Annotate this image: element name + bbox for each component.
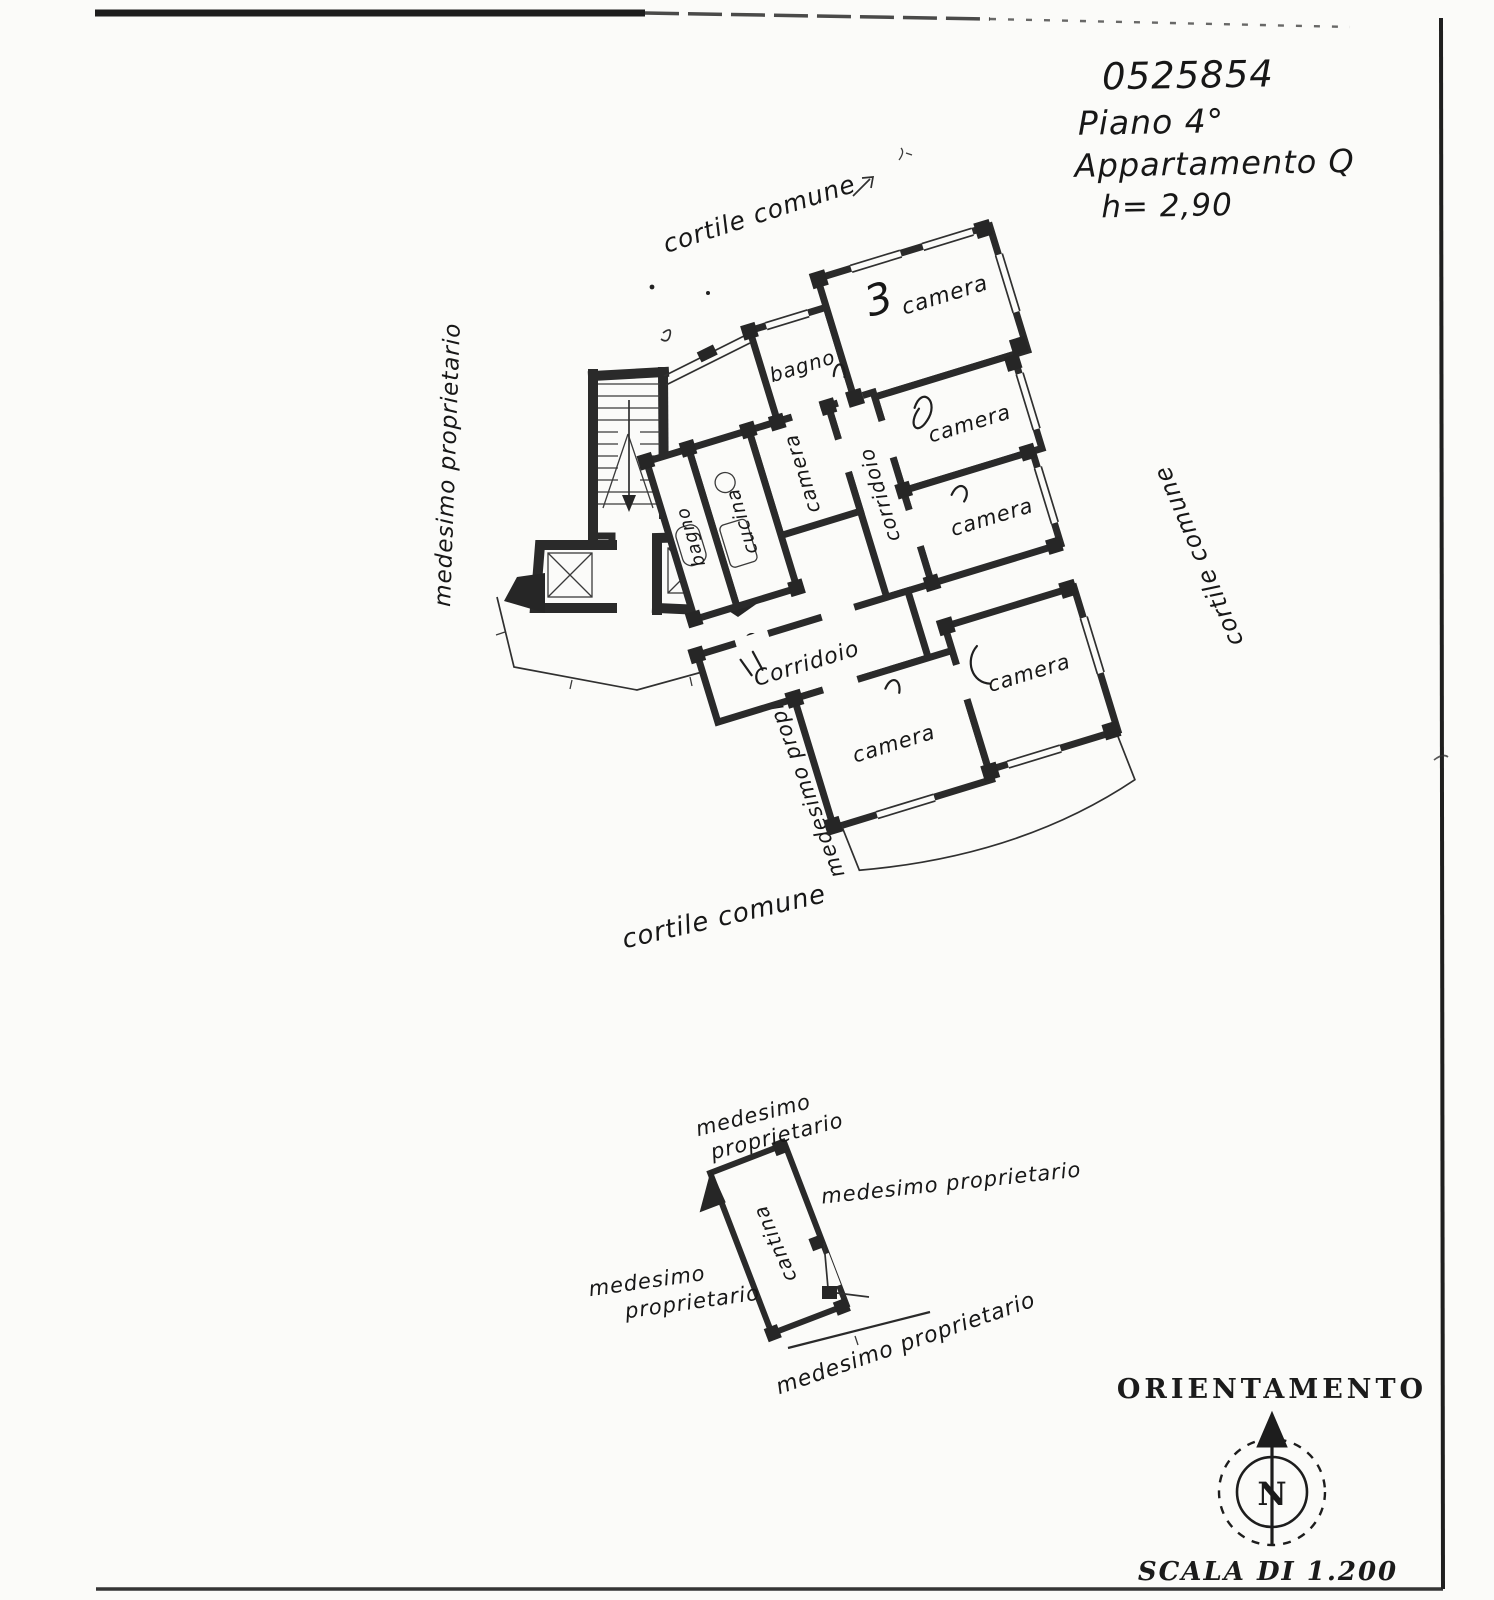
elevator-x-icon: [548, 553, 592, 597]
floor-label: Piano 4°: [1078, 101, 1225, 143]
ink-dot: [650, 285, 655, 290]
window-band-top-left: [664, 334, 750, 385]
owner-label-cellar-right: medesimo proprietario: [820, 1157, 1082, 1208]
elevator-left: [504, 536, 612, 613]
apartment-label: Appartamento Q: [1072, 142, 1355, 185]
cellar-plan: cantina medesimo proprietario medesimo p…: [587, 1083, 1082, 1400]
ceiling-height-label: h= 2,90: [1101, 187, 1233, 225]
compass-icon: N: [1219, 1412, 1325, 1546]
orientation-title: ORIENTAMENTO: [1117, 1374, 1427, 1405]
compass-north-letter: N: [1257, 1475, 1286, 1513]
owner-label-left: medesimo proprietario: [430, 322, 466, 607]
wall-pier: [504, 573, 545, 613]
scale-label: SCALA DI 1.200: [1138, 1557, 1398, 1587]
ink-dot: [706, 291, 710, 295]
pen-squiggle: [661, 330, 670, 341]
document-code: 0525854: [1102, 52, 1275, 98]
orientation-block: ORIENTAMENTO N SCALA DI 1.200: [1117, 1374, 1427, 1587]
courtyard-label-bottom: cortile comune: [619, 879, 829, 955]
sheet-border: [95, 13, 1448, 1589]
apartment-plan: bagno 3 camera camera camera corridoio C…: [593, 217, 1170, 914]
pen-mark: [899, 148, 912, 160]
header-block: 0525854 Piano 4° Appartamento Q h= 2,90: [1071, 51, 1356, 226]
cellar-owner-labels: medesimo proprietario medesimo proprieta…: [587, 1083, 1082, 1400]
scanned-cadastral-sheet: 0525854 Piano 4° Appartamento Q h= 2,90 …: [0, 0, 1494, 1600]
floor-plan-drawing: 0525854 Piano 4° Appartamento Q h= 2,90 …: [0, 0, 1494, 1600]
courtyard-label-right: cortile comune: [1148, 462, 1249, 651]
courtyard-label-top: cortile comune: [659, 169, 859, 259]
